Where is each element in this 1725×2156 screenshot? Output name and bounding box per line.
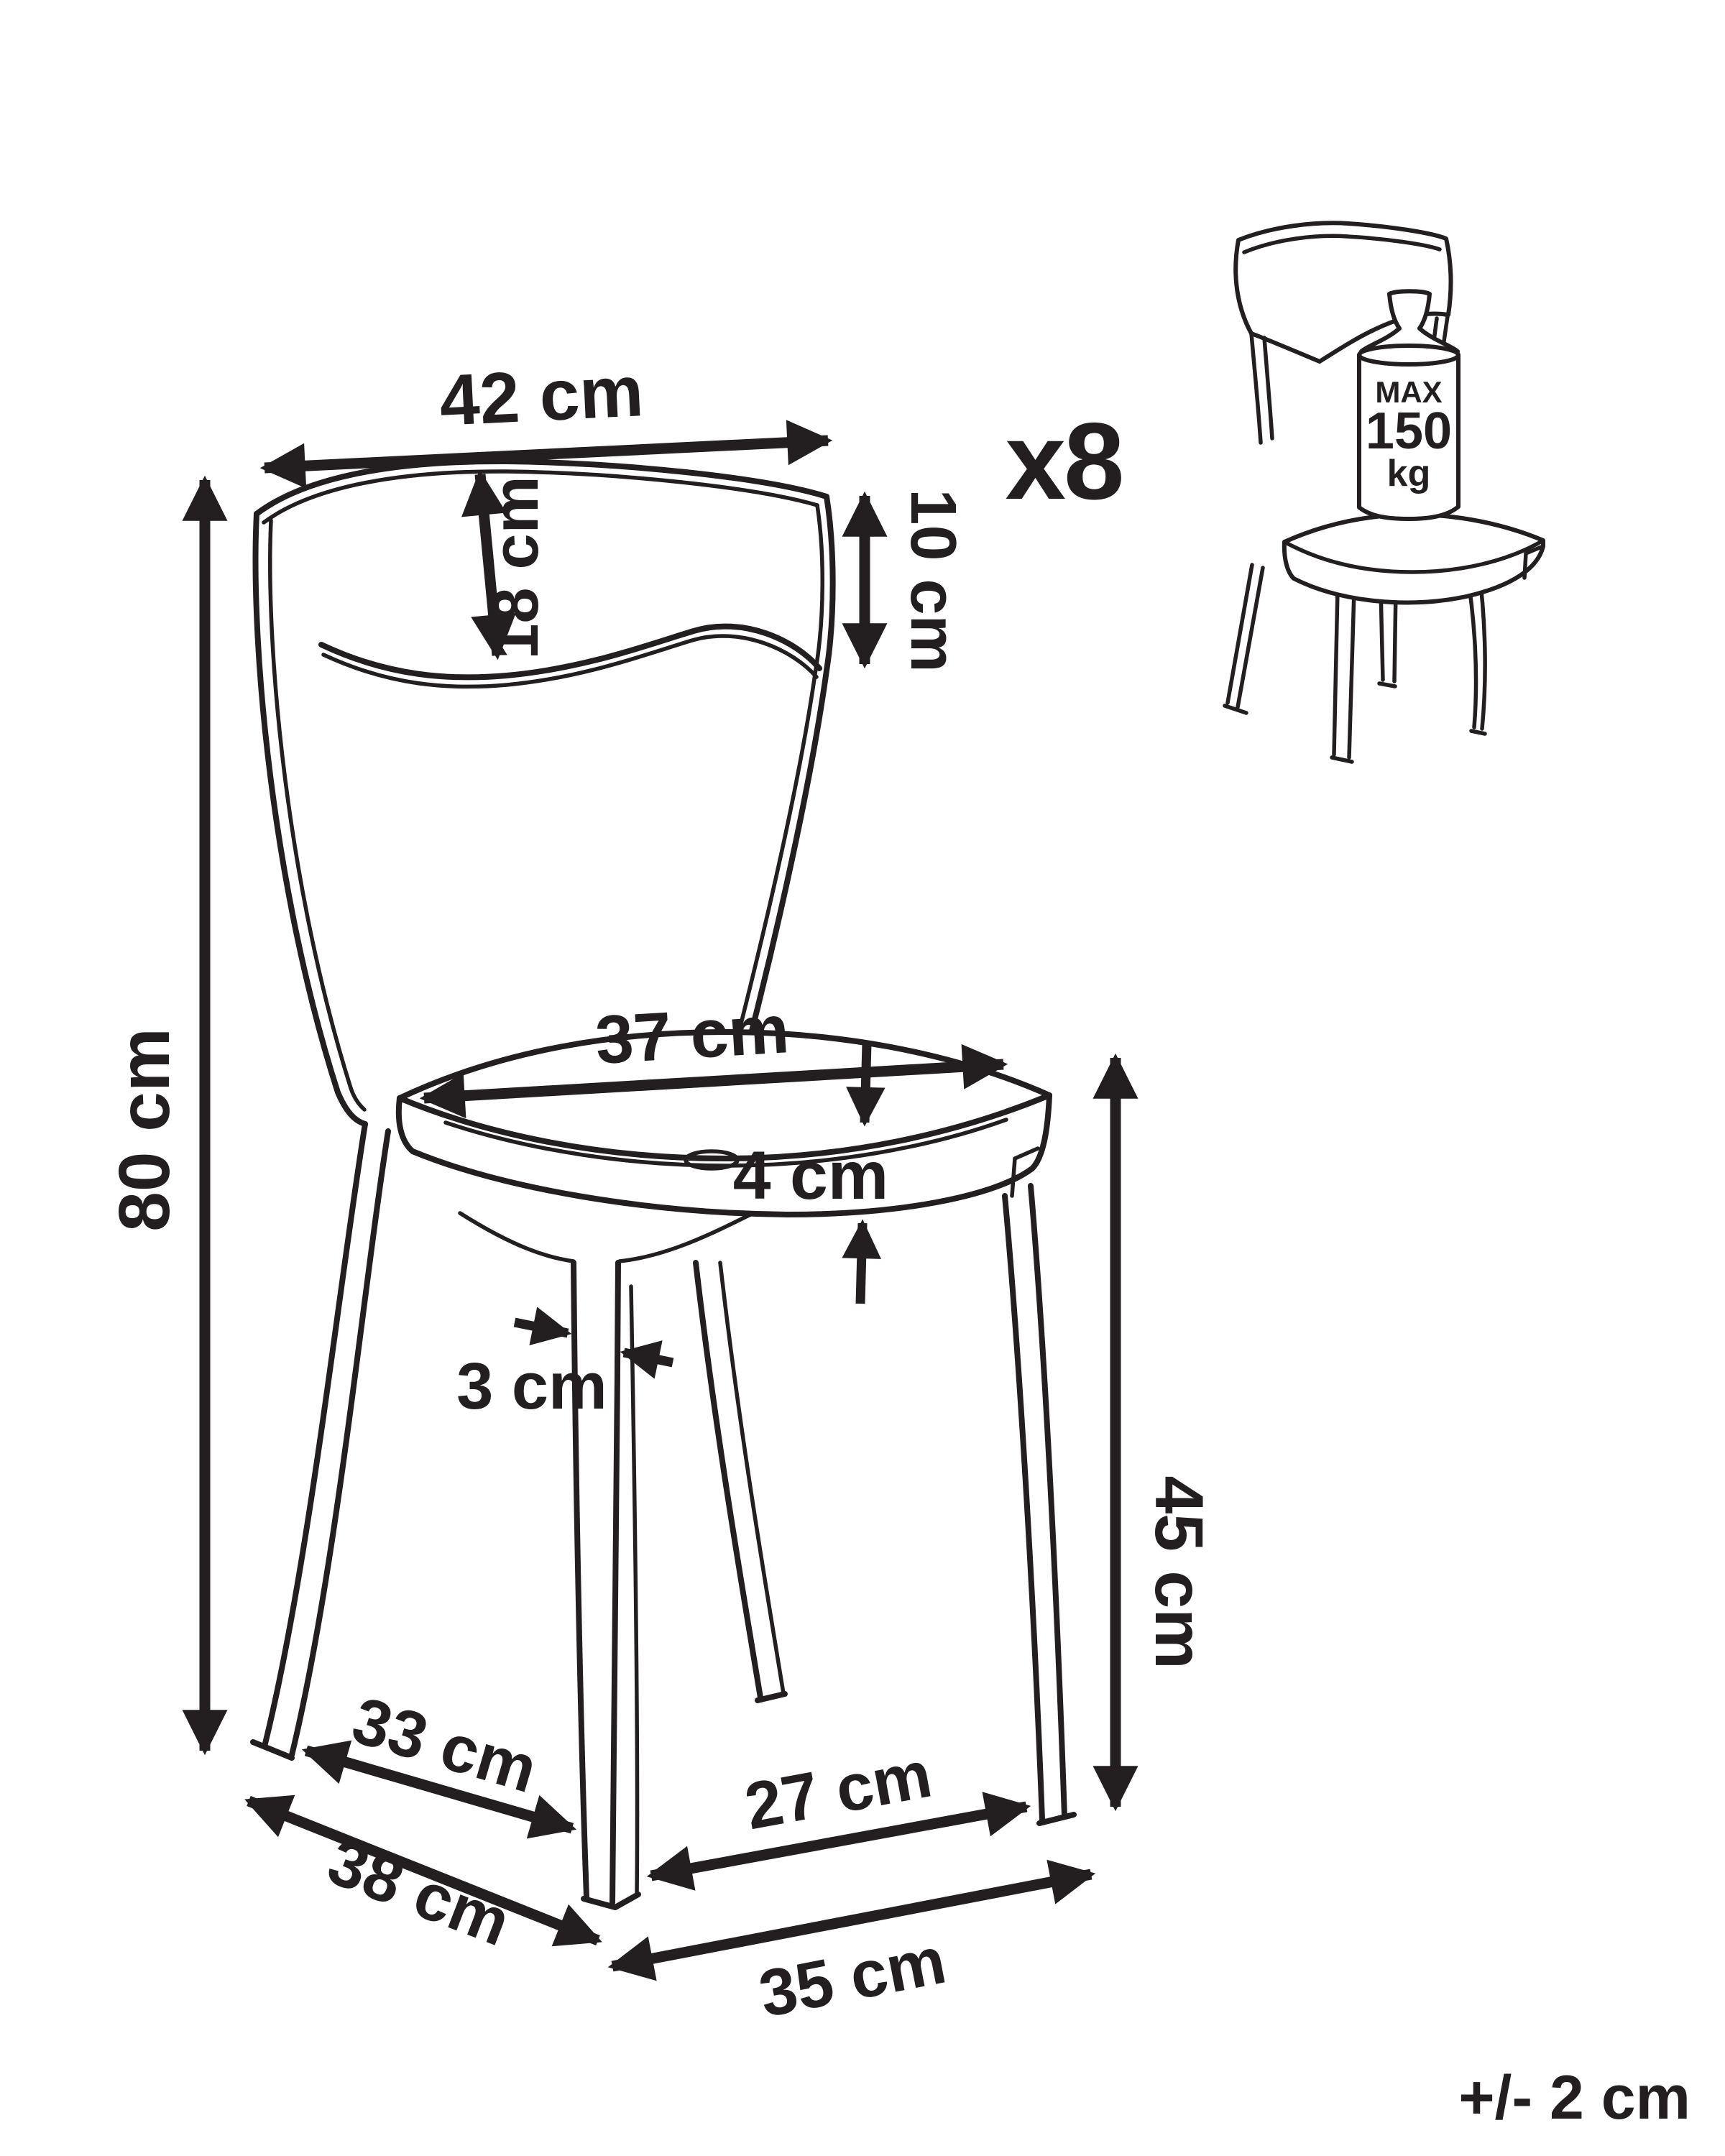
floor-35-label: 35 cm (753, 1924, 952, 2032)
dim-floor-back-to-front: 33 cm (306, 1683, 572, 1828)
dim-leg-thickness: 3 cm (456, 1322, 673, 1423)
weight-cylinder-top (1359, 346, 1458, 364)
back-left-leg-foot (253, 1742, 292, 1758)
chair-dimension-diagram: 42 cm 80 cm 18 cm 10 cm 37 cm 4 cm 3 cm (0, 0, 1725, 2156)
small-chair-leg1-b (1228, 565, 1252, 703)
floor-38-label: 38 cm (318, 1825, 520, 1961)
small-chair-leg2-a (1334, 589, 1338, 755)
weight-value-label: 150 (1366, 402, 1452, 460)
front-center-leg-side (631, 1286, 638, 1896)
overall-height-label: 80 cm (104, 1028, 185, 1232)
tolerance-label: +/- 2 cm (1458, 2063, 1690, 2132)
leg-thickness-arrow-left (515, 1322, 568, 1333)
quantity-label: x8 (1005, 400, 1122, 522)
small-chair-left-stem-inner (1264, 338, 1272, 438)
seat-thickness-label: 4 cm (733, 1138, 889, 1214)
dim-floor-front-width: 27 cm (651, 1738, 1026, 1876)
back-left-leg-inner (292, 1131, 388, 1755)
seat-thickness-arrow-top (865, 1044, 867, 1123)
dim-backrest-center-height: 18 cm (480, 474, 552, 660)
weight-capacity-illustration: MAX 150 kg (1225, 223, 1543, 762)
weight-unit-label: kg (1387, 453, 1431, 494)
seat-thickness-arrow-bottom (860, 1223, 862, 1304)
leg-thickness-label: 3 cm (456, 1350, 607, 1423)
small-chair-leg2-b (1349, 591, 1354, 757)
dim-floor-front-depth: 35 cm (612, 1874, 1091, 2032)
chair-dimension-sheet: 42 cm 80 cm 18 cm 10 cm 37 cm 4 cm 3 cm (0, 0, 1725, 2156)
under-seat-flare-left (460, 1213, 574, 1261)
main-chair-legs (253, 1124, 1074, 1907)
backrest-right-edge-outer (749, 497, 833, 1042)
small-chair-left-stem-outer (1251, 333, 1261, 443)
small-chair-leg1-a (1238, 568, 1263, 707)
seat-height-label: 45 cm (1141, 1475, 1217, 1669)
backrest-bottom-curve-inner (323, 636, 816, 687)
dim-seat-height: 45 cm (1115, 1058, 1217, 1807)
backrest-side-height-label: 10 cm (897, 489, 969, 672)
backrest-width-label: 42 cm (438, 351, 645, 441)
backrest-bottom-curve-outer (321, 627, 819, 678)
dim-backrest-width: 42 cm (264, 351, 828, 468)
dim-backrest-side-height: 10 cm (865, 489, 969, 672)
dim-overall-height: 80 cm (104, 480, 205, 1751)
backrest-center-height-label: 18 cm (480, 476, 552, 659)
front-center-leg-right (612, 1263, 618, 1903)
small-chair-leg4-foot (1471, 731, 1485, 734)
seat-width-label: 37 cm (594, 991, 791, 1079)
small-chair-leg1-foot (1225, 706, 1246, 713)
under-seat-flare-right (620, 1215, 750, 1261)
small-chair-leg3-foot (1379, 683, 1395, 686)
